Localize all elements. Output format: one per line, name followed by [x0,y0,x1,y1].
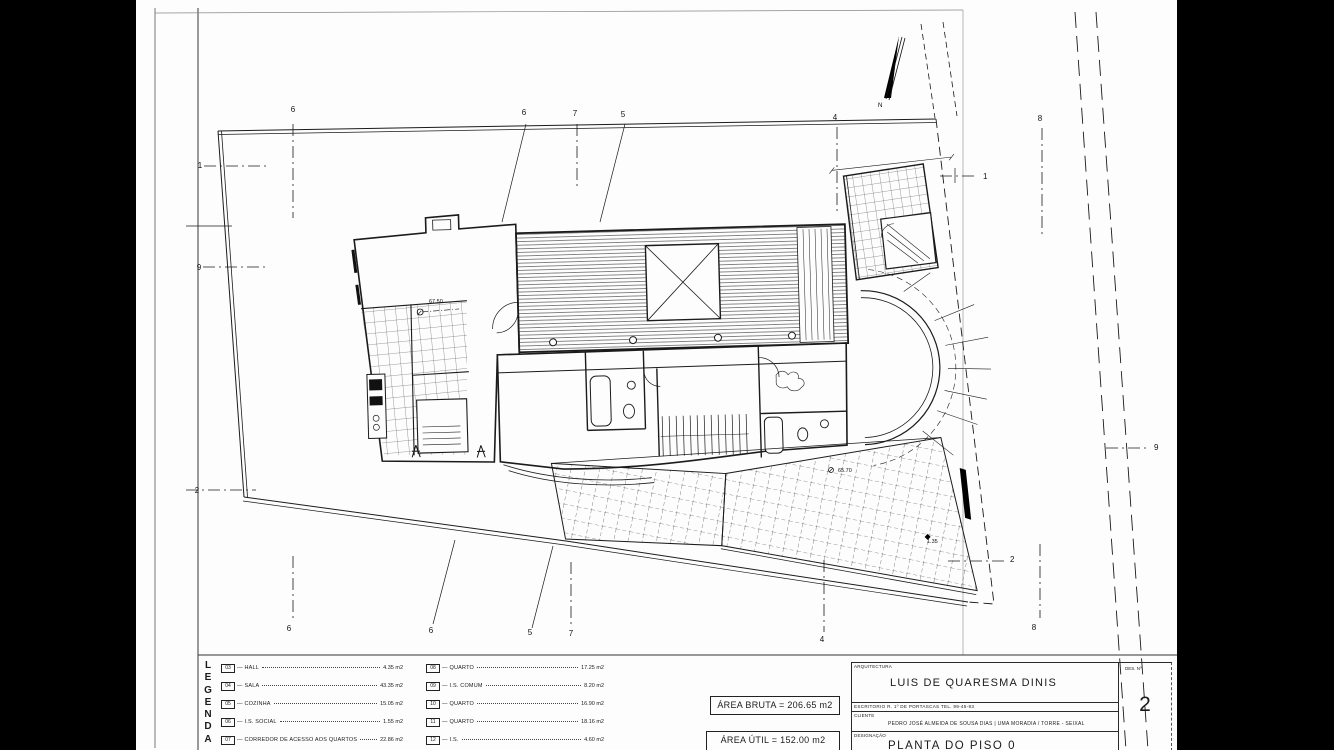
room-area: 4.60 m2 [584,737,604,743]
leader-dots [262,666,380,668]
grid-number: 7 [569,629,574,638]
sheet-number: 2 [1119,693,1171,717]
leader-dots [462,738,582,740]
grid-number: 1 [983,172,988,181]
room-area: 8.20 m2 [584,683,604,689]
terrace-tiles-left [551,459,727,551]
floor-plan-drawing: N [0,0,1334,750]
escritorio-line: ESCRITORIO R. 1º DE PORTASCAS TEL. 99-45… [852,703,1119,712]
room-label: HALL [245,665,260,671]
grid-number: 7 [573,109,578,118]
leader-dots [477,720,578,722]
room-number-badge: 09 [426,682,440,691]
grid-number: 4 [833,113,838,122]
legend-title-vertical: L E G E N D A [201,660,215,746]
leader-dots [477,702,578,704]
legend-row: 12 — I.S. 4.60 m2 [426,731,604,749]
legend-row: 07 — CORREDOR DE ACESSO AOS QUARTOS 22.8… [221,731,403,749]
column [788,332,795,339]
room-area: 18.16 m2 [581,719,604,725]
room-area: 15.05 m2 [380,701,403,707]
grid-number: 6 [429,626,434,635]
grid-number: 9 [1154,443,1159,452]
room-number-badge: 04 [221,682,235,691]
legend-row: 11 — QUARTO 18.16 m2 [426,713,604,731]
client-line: PEDRO JOSÉ ALMEIDA DE SOUSA DIAS | UMA M… [852,712,1119,727]
grid-number: 8 [1038,114,1043,123]
area-util-box: ÁREA ÚTIL = 152.00 m2 [706,731,840,750]
title-block-architecture-row: ARQUITECTURA LUIS DE QUARESMA DINIS [852,663,1119,703]
room-area: 43.35 m2 [380,683,403,689]
legend-row: 08 — QUARTO 17.25 m2 [426,659,604,677]
spot-level: 65.70 [838,468,852,474]
room-label: I.S. COMUM [450,683,483,689]
room-label: I.S. SOCIAL [245,719,277,725]
title-block-designation-row: DESIGNAÇÃO PLANTA DO PISO 0 [852,732,1119,750]
room-number-badge: 12 [426,736,440,745]
grid-number: 2 [1010,555,1015,564]
legend-row: 04 — SALA 43.35 m2 [221,677,403,695]
grid-number: 4 [820,635,825,644]
architect-name: LUIS DE QUARESMA DINIS [852,663,1119,702]
spot-level: 1.35 [927,539,938,545]
column [549,339,556,346]
spot-level: 67.50 [429,299,443,305]
legend-row: 10 — QUARTO 16.90 m2 [426,695,604,713]
room-number-badge: 07 [221,736,235,745]
legend-row: 05 — COZINHA 15.05 m2 [221,695,403,713]
room-label: COZINHA [245,701,271,707]
column [629,336,636,343]
column [714,334,721,341]
room-label: SALA [245,683,260,689]
leader-dots [360,738,377,740]
room-number-badge: 03 [221,664,235,673]
legend-column-1: 03 — HALL 4.35 m2 04 — SALA 43.35 m2 05 … [221,659,403,749]
room-number-badge: 10 [426,700,440,709]
room-label: QUARTO [450,665,475,671]
legend-row: 06 — I.S. SOCIAL 1.55 m2 [221,713,403,731]
title-block-client-row: CLIENTE PEDRO JOSÉ ALMEIDA DE SOUSA DIAS… [852,712,1119,732]
room-number-badge: 06 [221,718,235,727]
grid-number: 5 [621,110,626,119]
legend-row: 03 — HALL 4.35 m2 [221,659,403,677]
grid-number: 6 [291,105,296,114]
room-number-badge: 05 [221,700,235,709]
scanned-floor-plan-sheet: N [0,0,1334,750]
legend-column-2: 08 — QUARTO 17.25 m2 09 — I.S. COMUM 8.2… [426,659,604,749]
grid-number: 1 [198,161,203,170]
arquitectura-label: ARQUITECTURA [854,664,892,669]
grid-number: 6 [287,624,292,633]
room-label: CORREDOR DE ACESSO AOS QUARTOS [245,737,358,743]
area-bruta-box: ÁREA BRUTA = 206.65 m2 [710,696,840,715]
terrace-wall-poche [960,468,971,520]
room-area: 16.90 m2 [581,701,604,707]
kitchen-appliance [369,379,382,390]
designacao-label: DESIGNAÇÃO [854,733,886,738]
cliente-label: CLIENTE [854,713,874,718]
sheet-number-cell: DES. Nº 2 [1118,662,1172,750]
room-area: 22.86 m2 [380,737,403,743]
leader-dots [274,702,377,704]
leader-dots [262,684,377,686]
leader-dots [477,666,578,668]
room-area: 1.55 m2 [383,719,403,725]
room-area: 17.25 m2 [581,665,604,671]
kitchen-appliance [369,396,382,405]
bathtub [590,376,611,427]
title-block: ARQUITECTURA LUIS DE QUARESMA DINIS ESCR… [851,662,1119,750]
road-edge-lines [921,12,1148,750]
north-arrow-icon: N [878,36,905,109]
grid-number: 8 [1032,623,1037,632]
grid-number: 9 [197,263,202,272]
room-number-badge: 11 [426,718,440,727]
sheet-number-label: DES. Nº [1125,666,1142,671]
grid-number: 5 [528,628,533,637]
north-label: N [878,103,882,109]
legend-row: 09 — I.S. COMUM 8.20 m2 [426,677,604,695]
curved-paving-fan [860,266,993,465]
room-label: I.S. [450,737,459,743]
leader-dots [486,684,581,686]
grid-number: 2 [195,486,200,495]
room-label: QUARTO [450,701,475,707]
room-area: 4.35 m2 [383,665,403,671]
room-label: QUARTO [450,719,475,725]
grid-number: 6 [522,108,527,117]
terrace-tiles-right [719,437,977,598]
room-number-badge: 08 [426,664,440,673]
leader-dots [280,720,380,722]
drawing-title: PLANTA DO PISO 0 [852,732,1119,750]
building-group [351,153,998,612]
